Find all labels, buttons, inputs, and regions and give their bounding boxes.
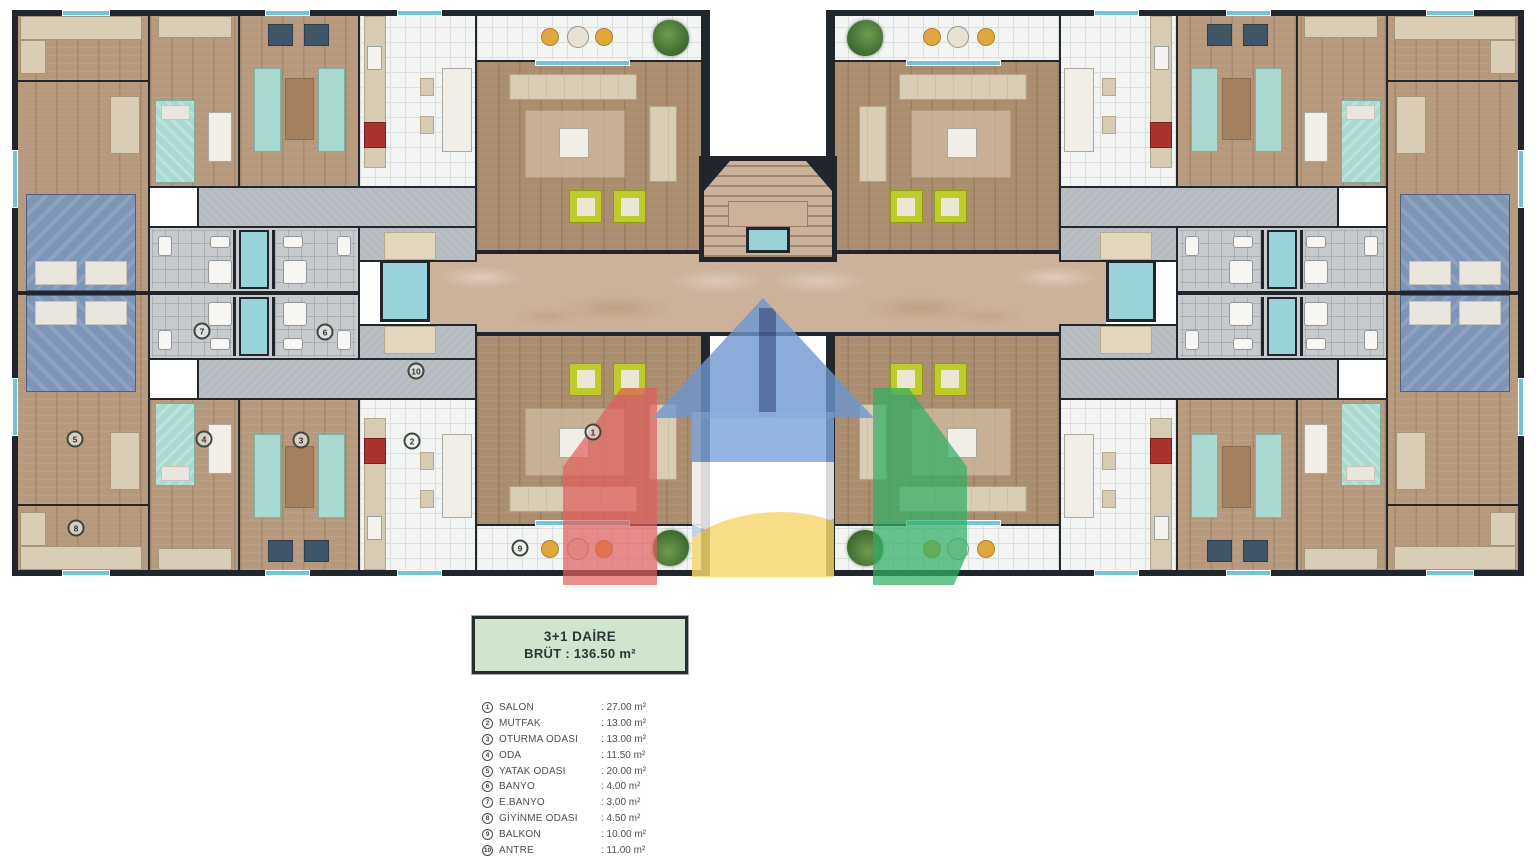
legend-room-area: : 10.00 m² bbox=[601, 829, 646, 840]
legend-number-badge: 9 bbox=[482, 829, 493, 840]
legend-room-area: : 11.50 m² bbox=[601, 750, 645, 761]
legend-number-badge: 10 bbox=[482, 845, 493, 856]
room-marker-yatak-odasi: 5 bbox=[67, 431, 84, 448]
legend-row: 1 SALON : 27.00 m² bbox=[482, 700, 712, 716]
legend: 1 SALON : 27.00 m² 2 MUTFAK : 13.00 m² 3… bbox=[482, 700, 712, 860]
legend-room-area: : 13.00 m² bbox=[601, 734, 646, 745]
legend-number-badge: 8 bbox=[482, 813, 493, 824]
legend-number-badge: 6 bbox=[482, 781, 493, 792]
legend-room-area: : 20.00 m² bbox=[601, 766, 646, 777]
room-marker-oturma-odasi: 3 bbox=[293, 432, 310, 449]
legend-room-area: : 13.00 m² bbox=[601, 718, 646, 729]
room-marker-banyo: 6 bbox=[317, 324, 334, 341]
legend-row: 10 ANTRE : 11.00 m² bbox=[482, 842, 712, 858]
legend-room-area: : 4.00 m² bbox=[601, 781, 640, 792]
legend-row: 3 OTURMA ODASI : 13.00 m² bbox=[482, 732, 712, 748]
legend-row: 4 ODA : 11.50 m² bbox=[482, 747, 712, 763]
legend-room-name: SALON bbox=[499, 702, 595, 713]
room-marker-salon: 1 bbox=[585, 424, 602, 441]
legend-room-name: OTURMA ODASI bbox=[499, 734, 595, 745]
legend-row: 8 GİYİNME ODASI : 4.50 m² bbox=[482, 811, 712, 827]
legend-number-badge: 7 bbox=[482, 797, 493, 808]
legend-room-name: MUTFAK bbox=[499, 718, 595, 729]
legend-room-area: : 27.00 m² bbox=[601, 702, 646, 713]
legend-room-area: : 11.00 m² bbox=[601, 845, 645, 856]
legend-number-badge: 1 bbox=[482, 702, 493, 713]
unit-area-label: BRÜT : 136.50 m² bbox=[524, 646, 636, 661]
room-marker-giyinme-odasi: 8 bbox=[68, 520, 85, 537]
legend-room-name: YATAK ODASI bbox=[499, 766, 595, 777]
room-markers: 12345678910 bbox=[0, 0, 1536, 864]
legend-row: 9 BALKON : 10.00 m² bbox=[482, 826, 712, 842]
room-marker-mutfak: 2 bbox=[404, 433, 421, 450]
legend-room-area: : 4.50 m² bbox=[601, 813, 640, 824]
legend-row: 6 BANYO : 4.00 m² bbox=[482, 779, 712, 795]
legend-row: 7 E.BANYO : 3.00 m² bbox=[482, 795, 712, 811]
legend-room-area: : 3.00 m² bbox=[601, 797, 640, 808]
legend-room-name: ANTRE bbox=[499, 845, 595, 856]
legend-number-badge: 3 bbox=[482, 734, 493, 745]
legend-number-badge: 2 bbox=[482, 718, 493, 729]
legend-row: 2 MUTFAK : 13.00 m² bbox=[482, 716, 712, 732]
legend-room-name: ODA bbox=[499, 750, 595, 761]
unit-info-box: 3+1 DAİRE BRÜT : 136.50 m² bbox=[472, 616, 688, 674]
legend-room-name: E.BANYO bbox=[499, 797, 595, 808]
room-marker-balkon: 9 bbox=[512, 540, 529, 557]
floor-plan-canvas: 12345678910 3+1 DAİRE BRÜT : 136.50 m² 1… bbox=[0, 0, 1536, 864]
legend-room-name: GİYİNME ODASI bbox=[499, 813, 595, 824]
room-marker-e-banyo: 7 bbox=[194, 323, 211, 340]
legend-row: 5 YATAK ODASI : 20.00 m² bbox=[482, 763, 712, 779]
legend-room-name: BALKON bbox=[499, 829, 595, 840]
room-marker-oda: 4 bbox=[196, 431, 213, 448]
room-marker-antre: 10 bbox=[408, 363, 425, 380]
unit-type-label: 3+1 DAİRE bbox=[544, 629, 616, 644]
legend-number-badge: 5 bbox=[482, 766, 493, 777]
legend-room-name: BANYO bbox=[499, 781, 595, 792]
legend-number-badge: 4 bbox=[482, 750, 493, 761]
